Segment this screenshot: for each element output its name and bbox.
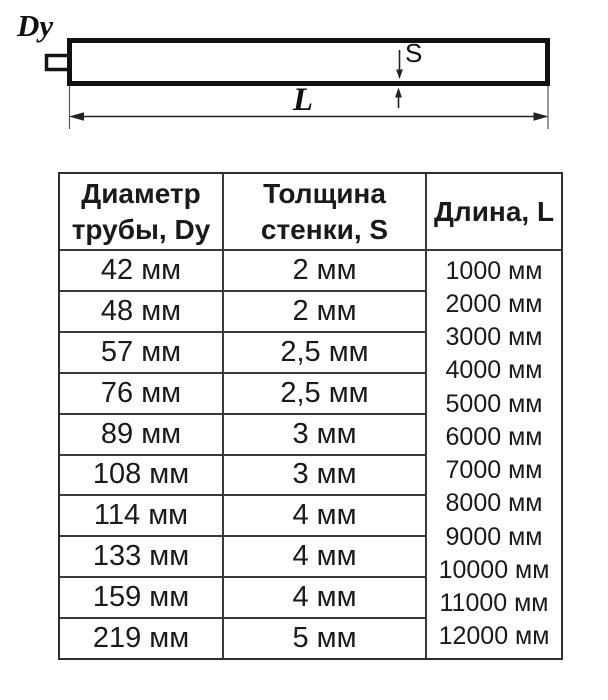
diameter-header-line2: трубы, Dy <box>72 212 211 248</box>
arrow-right-icon <box>534 112 549 121</box>
diameter-cell: 57 мм <box>60 333 222 374</box>
diameter-cell: 219 мм <box>60 619 222 658</box>
length-option: 4000 мм <box>427 355 561 385</box>
diameter-cell: 133 мм <box>60 537 222 578</box>
diameter-cell: 48 мм <box>60 292 222 333</box>
length-column-header: Длина, L <box>427 174 561 251</box>
thickness-cell: 3 мм <box>224 456 425 497</box>
pipe-diameter-label: Dy <box>17 8 53 44</box>
diameter-column-header: Диаметр трубы, Dy <box>60 174 222 251</box>
thickness-cell: 5 мм <box>224 619 425 658</box>
length-option: 6000 мм <box>427 422 561 452</box>
diameter-cell: 159 мм <box>60 578 222 619</box>
diameter-column: Диаметр трубы, Dy 42 мм 48 мм 57 мм 76 м… <box>60 174 224 658</box>
diameter-cell: 114 мм <box>60 496 222 537</box>
length-option: 12000 мм <box>427 621 561 651</box>
diameter-cell: 89 мм <box>60 415 222 456</box>
diameter-header-line1: Диаметр <box>81 176 200 212</box>
thickness-cell: 4 мм <box>224 496 425 537</box>
thickness-header-line1: Толщина <box>263 176 386 212</box>
length-option: 5000 мм <box>427 389 561 419</box>
pipe-drawing: Dy S L <box>0 0 608 160</box>
thickness-cell: 4 мм <box>224 578 425 619</box>
thickness-cell: 2 мм <box>224 251 425 292</box>
thickness-header-line2: стенки, S <box>261 212 388 248</box>
length-option: 7000 мм <box>427 455 561 485</box>
pipe-drawing-canvas <box>0 0 608 160</box>
length-option: 3000 мм <box>427 322 561 352</box>
length-option: 9000 мм <box>427 522 561 552</box>
diameter-cell: 42 мм <box>60 251 222 292</box>
length-options-cell: 1000 мм 2000 мм 3000 мм 4000 мм 5000 мм … <box>427 251 561 658</box>
thickness-column-header: Толщина стенки, S <box>224 174 425 251</box>
diameter-cell: 108 мм <box>60 456 222 497</box>
length-option: 10000 мм <box>427 555 561 585</box>
length-option: 8000 мм <box>427 488 561 518</box>
thickness-cell: 2 мм <box>224 292 425 333</box>
length-label: L <box>281 82 325 119</box>
thickness-cell: 3 мм <box>224 415 425 456</box>
pipe-body <box>70 41 548 84</box>
length-option: 2000 мм <box>427 289 561 319</box>
thickness-column: Толщина стенки, S 2 мм 2 мм 2,5 мм 2,5 м… <box>224 174 427 658</box>
pipe-spec-table: Диаметр трубы, Dy 42 мм 48 мм 57 мм 76 м… <box>58 172 563 660</box>
length-option: 1000 мм <box>427 256 561 286</box>
thickness-cell: 2,5 мм <box>224 374 425 415</box>
thickness-cell: 2,5 мм <box>224 333 425 374</box>
s-arrow-up-icon <box>395 88 402 109</box>
wall-thickness-label: S <box>405 38 422 69</box>
diameter-cell: 76 мм <box>60 374 222 415</box>
length-header: Длина, L <box>434 194 554 230</box>
thickness-cell: 4 мм <box>224 537 425 578</box>
length-column: Длина, L 1000 мм 2000 мм 3000 мм 4000 мм… <box>427 174 561 658</box>
length-option: 11000 мм <box>427 588 561 618</box>
arrow-left-icon <box>69 112 84 121</box>
